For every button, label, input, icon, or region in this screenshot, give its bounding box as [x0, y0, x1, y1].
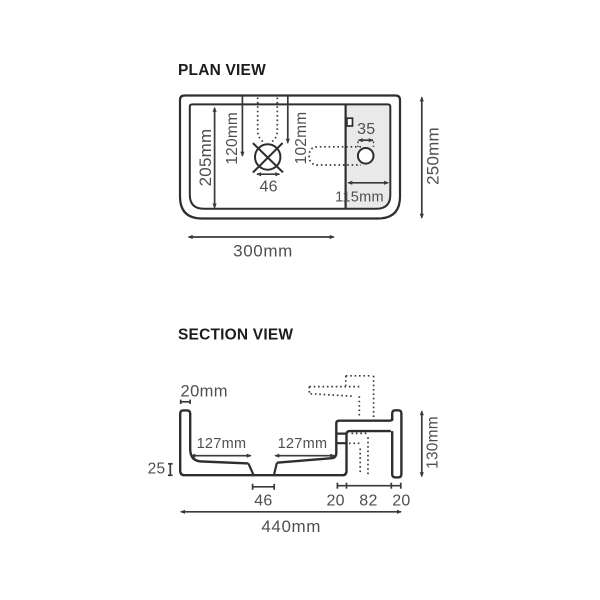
- svg-text:25: 25: [148, 461, 166, 478]
- svg-text:35: 35: [357, 121, 375, 138]
- svg-text:46: 46: [254, 493, 272, 510]
- svg-text:20: 20: [392, 493, 410, 510]
- svg-text:130mm: 130mm: [425, 416, 442, 469]
- svg-text:82: 82: [359, 493, 377, 510]
- svg-text:PLAN VIEW: PLAN VIEW: [178, 62, 266, 79]
- svg-text:127mm: 127mm: [197, 436, 247, 452]
- svg-text:20mm: 20mm: [181, 383, 228, 401]
- svg-text:127mm: 127mm: [278, 436, 328, 452]
- svg-text:115mm: 115mm: [335, 189, 384, 205]
- svg-text:SECTION VIEW: SECTION VIEW: [178, 327, 293, 344]
- svg-text:120mm: 120mm: [224, 112, 241, 165]
- svg-text:46: 46: [259, 179, 277, 196]
- svg-text:205mm: 205mm: [196, 129, 215, 187]
- svg-text:102mm: 102mm: [293, 112, 310, 165]
- svg-text:440mm: 440mm: [261, 517, 321, 536]
- svg-text:300mm: 300mm: [233, 241, 293, 260]
- svg-text:250mm: 250mm: [423, 127, 442, 185]
- svg-text:20: 20: [326, 493, 344, 510]
